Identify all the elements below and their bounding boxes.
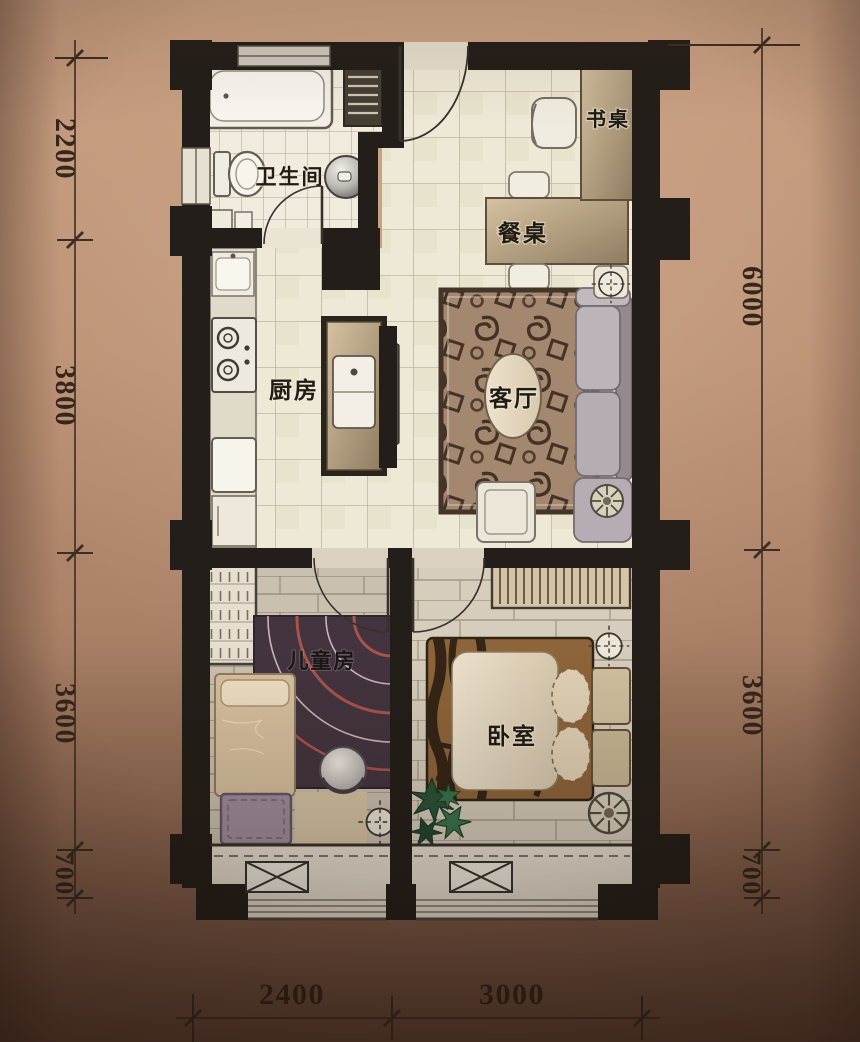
photo-tint-overlay xyxy=(0,0,860,1042)
floor-plan-drawing: 卫生间 xyxy=(0,0,860,1042)
floor-plan-photo: 卫生间 xyxy=(0,0,860,1042)
